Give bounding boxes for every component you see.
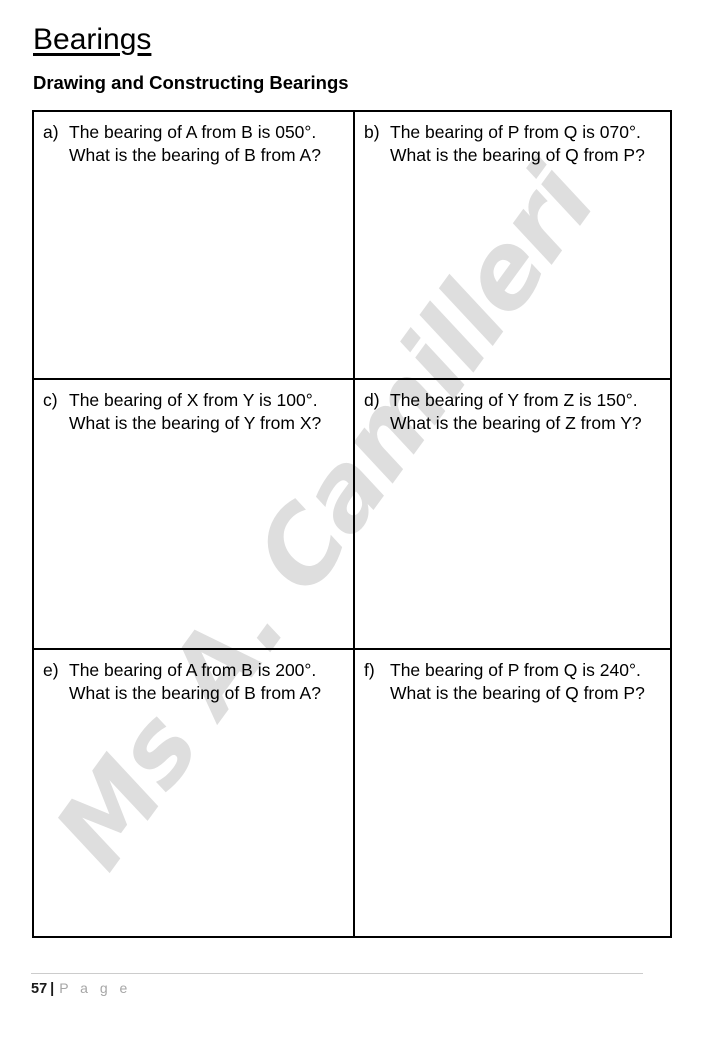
question-d-line1: The bearing of Y from Z is 150°. (390, 389, 665, 412)
footer-divider (31, 973, 643, 974)
question-a-line2: What is the bearing of B from A? (69, 144, 348, 167)
question-a-line1: The bearing of A from B is 050°. (69, 121, 348, 144)
question-c-label: c) (43, 389, 69, 435)
question-b-label: b) (364, 121, 390, 167)
question-cell-b: b) The bearing of P from Q is 070°. What… (354, 111, 671, 379)
question-d-line2: What is the bearing of Z from Y? (390, 412, 665, 435)
question-c-line1: The bearing of X from Y is 100°. (69, 389, 348, 412)
worksheet-page: Ms A. Camilleri Bearings Drawing and Con… (0, 0, 702, 1040)
question-e-label: e) (43, 659, 69, 705)
question-cell-d: d) The bearing of Y from Z is 150°. What… (354, 379, 671, 649)
question-f-line2: What is the bearing of Q from P? (390, 682, 665, 705)
page-title: Bearings (33, 23, 151, 57)
question-f-label: f) (364, 659, 390, 705)
question-e-line1: The bearing of A from B is 200°. (69, 659, 348, 682)
section-heading: Drawing and Constructing Bearings (33, 72, 349, 94)
question-d-label: d) (364, 389, 390, 435)
question-b-line2: What is the bearing of Q from P? (390, 144, 665, 167)
question-c-line2: What is the bearing of Y from X? (69, 412, 348, 435)
question-cell-a: a) The bearing of A from B is 050°. What… (33, 111, 354, 379)
question-cell-c: c) The bearing of X from Y is 100°. What… (33, 379, 354, 649)
question-cell-e: e) The bearing of A from B is 200°. What… (33, 649, 354, 937)
question-b-line1: The bearing of P from Q is 070°. (390, 121, 665, 144)
footer-page-label: P a g e (59, 980, 131, 996)
question-a-label: a) (43, 121, 69, 167)
question-cell-f: f) The bearing of P from Q is 240°. What… (354, 649, 671, 937)
question-e-line2: What is the bearing of B from A? (69, 682, 348, 705)
page-number: 57 (31, 981, 47, 997)
footer-separator: | (50, 981, 54, 997)
question-f-line1: The bearing of P from Q is 240°. (390, 659, 665, 682)
page-footer: 57|P a g e (31, 980, 131, 997)
questions-table: a) The bearing of A from B is 050°. What… (32, 110, 672, 938)
